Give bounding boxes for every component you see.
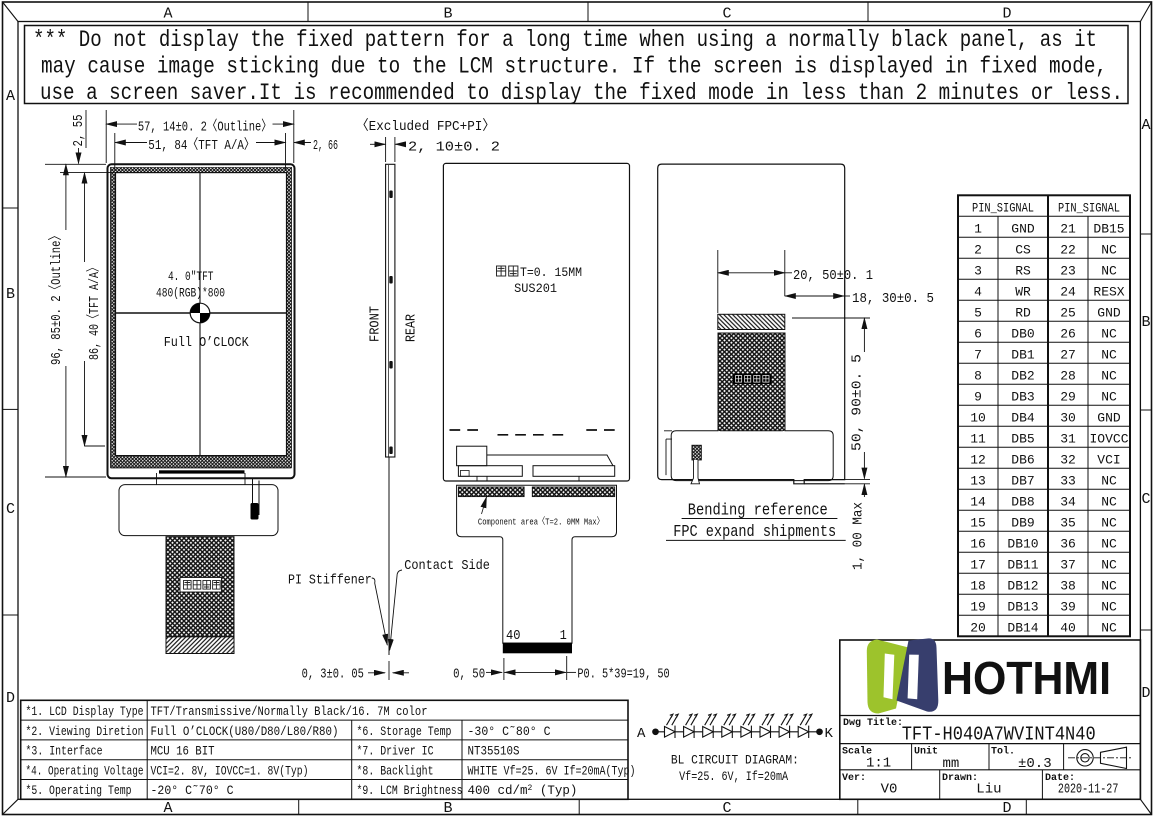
svg-text:NC: NC bbox=[1101, 474, 1117, 489]
svg-text:TFT-H040A7WVINT4N40: TFT-H040A7WVINT4N40 bbox=[902, 724, 1096, 746]
svg-text:VCI: VCI bbox=[1097, 453, 1120, 468]
svg-text:DB12: DB12 bbox=[1007, 579, 1038, 594]
svg-text:may cause image sticking due t: may cause image sticking due to the LCM … bbox=[41, 54, 1107, 81]
svg-text:use a screen saver.It is recom: use a screen saver.It is recommended to … bbox=[40, 80, 1123, 107]
svg-text:Vf=25. 6V, If=20mA: Vf=25. 6V, If=20mA bbox=[679, 769, 788, 784]
svg-text:36: 36 bbox=[1060, 537, 1076, 552]
svg-text:Ver:: Ver: bbox=[842, 773, 866, 784]
svg-text:40: 40 bbox=[1060, 621, 1076, 636]
svg-text:*4. Operating Voltage: *4. Operating Voltage bbox=[26, 764, 144, 778]
svg-text:FRONT: FRONT bbox=[368, 306, 384, 342]
svg-text:DB7: DB7 bbox=[1011, 474, 1034, 489]
svg-text:8: 8 bbox=[974, 369, 982, 384]
svg-text:NC: NC bbox=[1101, 600, 1117, 615]
svg-text:V0: V0 bbox=[881, 782, 898, 798]
svg-text:Full O’CLOCK: Full O’CLOCK bbox=[164, 335, 249, 351]
svg-text:DB13: DB13 bbox=[1007, 600, 1038, 615]
svg-text:PI Stiffener: PI Stiffener bbox=[288, 573, 372, 589]
svg-text:20: 20 bbox=[970, 621, 986, 636]
svg-text:MCU 16 BIT: MCU 16 BIT bbox=[151, 745, 215, 759]
svg-text:19: 19 bbox=[970, 600, 986, 615]
svg-text:NC: NC bbox=[1101, 621, 1117, 636]
svg-text:38: 38 bbox=[1060, 579, 1076, 594]
svg-text:0, 50: 0, 50 bbox=[453, 667, 485, 683]
svg-text:*2. Viewing Diretion: *2. Viewing Diretion bbox=[26, 725, 144, 739]
svg-text:NC: NC bbox=[1101, 369, 1117, 384]
svg-text:12: 12 bbox=[970, 453, 986, 468]
svg-text:Tol.: Tol. bbox=[991, 746, 1015, 758]
svg-text:*9. LCM Brightness: *9. LCM Brightness bbox=[357, 784, 463, 798]
svg-text:4: 4 bbox=[974, 285, 982, 300]
svg-text:NC: NC bbox=[1101, 495, 1117, 510]
svg-text:-20° C˜70° C: -20° C˜70° C bbox=[151, 784, 234, 798]
svg-text:GND: GND bbox=[1097, 306, 1121, 321]
svg-text:WR: WR bbox=[1015, 285, 1031, 300]
svg-text:NT35510S: NT35510S bbox=[468, 745, 520, 759]
svg-text:*3. Interface: *3. Interface bbox=[26, 745, 103, 759]
svg-text:DB2: DB2 bbox=[1011, 369, 1034, 384]
svg-text:D: D bbox=[1141, 685, 1150, 702]
svg-text:〈Excluded FPC+PI〉: 〈Excluded FPC+PI〉 bbox=[356, 118, 495, 135]
svg-text:400 cd/m2 (Typ): 400 cd/m2 (Typ) bbox=[468, 784, 578, 798]
svg-text:RESX: RESX bbox=[1093, 285, 1124, 300]
svg-text:NC: NC bbox=[1101, 537, 1117, 552]
svg-text:DB6: DB6 bbox=[1011, 453, 1034, 468]
svg-text:16: 16 bbox=[970, 537, 986, 552]
svg-text:C: C bbox=[6, 501, 15, 518]
svg-text:50, 90±0. 5: 50, 90±0. 5 bbox=[850, 354, 866, 451]
svg-text:34: 34 bbox=[1060, 495, 1076, 510]
svg-text:DB14: DB14 bbox=[1007, 621, 1038, 636]
svg-text:9: 9 bbox=[974, 390, 982, 405]
svg-text:DB10: DB10 bbox=[1007, 537, 1038, 552]
svg-text:PIN_SIGNAL: PIN_SIGNAL bbox=[972, 201, 1034, 216]
svg-text:Contact Side: Contact Side bbox=[404, 558, 490, 574]
svg-text:96, 85±0. 2〈Outline〉: 96, 85±0. 2〈Outline〉 bbox=[48, 230, 65, 365]
svg-text:T=0. 15MM: T=0. 15MM bbox=[520, 265, 582, 280]
svg-text:480(RGB)*800: 480(RGB)*800 bbox=[156, 286, 225, 301]
svg-text:RD: RD bbox=[1015, 306, 1031, 321]
svg-text:17: 17 bbox=[970, 558, 986, 573]
svg-text:Drawn:: Drawn: bbox=[942, 773, 978, 784]
svg-text:WHITE Vf=25. 6V If=20mA(Typ): WHITE Vf=25. 6V If=20mA(Typ) bbox=[468, 764, 636, 778]
svg-text:D: D bbox=[6, 690, 15, 707]
svg-text:5: 5 bbox=[974, 306, 982, 321]
svg-text:39: 39 bbox=[1060, 600, 1076, 615]
svg-text:DB4: DB4 bbox=[1011, 411, 1035, 426]
svg-text:D: D bbox=[1002, 6, 1011, 23]
svg-text:A: A bbox=[1141, 117, 1150, 134]
svg-text:K: K bbox=[825, 726, 834, 742]
svg-text:GND: GND bbox=[1097, 411, 1121, 426]
svg-text:GND: GND bbox=[1011, 222, 1035, 237]
svg-text:NC: NC bbox=[1101, 579, 1117, 594]
svg-text:SUS201: SUS201 bbox=[514, 281, 557, 296]
svg-text:Dwg Title:: Dwg Title: bbox=[843, 717, 903, 729]
svg-text:33: 33 bbox=[1060, 474, 1076, 489]
svg-text:1, 00 Max: 1, 00 Max bbox=[851, 502, 867, 570]
svg-text:2, 55: 2, 55 bbox=[71, 115, 87, 147]
svg-text:37: 37 bbox=[1060, 558, 1076, 573]
svg-text:Liu: Liu bbox=[976, 782, 1001, 798]
svg-text:B: B bbox=[6, 286, 15, 303]
svg-text:A: A bbox=[6, 88, 15, 105]
svg-text:C: C bbox=[722, 6, 731, 23]
svg-text:NC: NC bbox=[1101, 327, 1117, 342]
svg-text:REAR: REAR bbox=[404, 314, 420, 342]
svg-text:*6. Storage Temp: *6. Storage Temp bbox=[357, 725, 452, 739]
svg-text:A: A bbox=[637, 726, 646, 742]
svg-text:NC: NC bbox=[1101, 558, 1117, 573]
svg-text:NC: NC bbox=[1101, 348, 1117, 363]
svg-text:NC: NC bbox=[1101, 243, 1117, 258]
svg-text:51, 84〈TFT A/A〉: 51, 84〈TFT A/A〉 bbox=[148, 137, 255, 154]
svg-text:20, 50±0. 1: 20, 50±0. 1 bbox=[793, 268, 873, 284]
svg-text:21: 21 bbox=[1060, 222, 1076, 237]
svg-text:Full O’CLOCK(U80/D80/L80/R80): Full O’CLOCK(U80/D80/L80/R80) bbox=[151, 725, 339, 739]
svg-text:Unit: Unit bbox=[914, 746, 938, 758]
svg-text:27: 27 bbox=[1060, 348, 1076, 363]
svg-text:1: 1 bbox=[560, 628, 567, 644]
svg-text:C: C bbox=[722, 800, 731, 817]
svg-text:*7. Driver IC: *7. Driver IC bbox=[357, 745, 434, 759]
svg-text:10: 10 bbox=[970, 411, 986, 426]
svg-text:Bending reference: Bending reference bbox=[688, 501, 828, 520]
svg-text:A: A bbox=[163, 6, 172, 23]
svg-text:*** Do not display the fixed p: *** Do not display the fixed pattern for… bbox=[33, 27, 1097, 54]
svg-text:*5. Operating Temp: *5. Operating Temp bbox=[26, 784, 132, 798]
svg-text:0, 3±0. 05: 0, 3±0. 05 bbox=[302, 667, 364, 683]
svg-text:-30° C˜80° C: -30° C˜80° C bbox=[468, 725, 551, 739]
svg-text:DB11: DB11 bbox=[1007, 558, 1038, 573]
svg-text:NC: NC bbox=[1101, 516, 1117, 531]
svg-text:2, 66: 2, 66 bbox=[313, 138, 338, 154]
svg-text:6: 6 bbox=[974, 327, 982, 342]
svg-text:DB15: DB15 bbox=[1093, 222, 1124, 237]
svg-text:DB3: DB3 bbox=[1011, 390, 1034, 405]
svg-text:VCI=2. 8V, IOVCC=1. 8V(Typ): VCI=2. 8V, IOVCC=1. 8V(Typ) bbox=[151, 764, 309, 778]
svg-text:30: 30 bbox=[1060, 411, 1076, 426]
svg-text:11: 11 bbox=[970, 432, 986, 447]
svg-text:NC: NC bbox=[1101, 264, 1117, 279]
svg-text:DB8: DB8 bbox=[1011, 495, 1034, 510]
svg-text:4. 0″TFT: 4. 0″TFT bbox=[168, 269, 214, 284]
svg-text:2: 2 bbox=[974, 243, 982, 258]
svg-text:26: 26 bbox=[1060, 327, 1076, 342]
svg-text:DB0: DB0 bbox=[1011, 327, 1034, 342]
svg-text:13: 13 bbox=[970, 474, 986, 489]
svg-text:32: 32 bbox=[1060, 453, 1076, 468]
svg-text:2, 10±0. 2: 2, 10±0. 2 bbox=[408, 140, 500, 156]
svg-text:23: 23 bbox=[1060, 264, 1076, 279]
svg-text:22: 22 bbox=[1060, 243, 1076, 258]
svg-text:A: A bbox=[163, 800, 172, 817]
svg-text:*8. Backlight: *8. Backlight bbox=[357, 764, 434, 778]
svg-text:TFT/Transmissive/Normally Blac: TFT/Transmissive/Normally Black/16. 7M c… bbox=[151, 705, 428, 719]
svg-text:B: B bbox=[443, 800, 452, 817]
svg-text:B: B bbox=[1141, 314, 1150, 331]
svg-text:Component area〈T=2. 0MM Max〉: Component area〈T=2. 0MM Max〉 bbox=[478, 517, 604, 528]
svg-text:mm: mm bbox=[943, 756, 960, 772]
svg-text:28: 28 bbox=[1060, 369, 1076, 384]
svg-text:31: 31 bbox=[1060, 432, 1076, 447]
svg-text:RS: RS bbox=[1015, 264, 1031, 279]
svg-text:PIN_SIGNAL: PIN_SIGNAL bbox=[1058, 201, 1120, 216]
svg-text:86, 40〈TFT A/A〉: 86, 40〈TFT A/A〉 bbox=[86, 262, 103, 360]
svg-text:35: 35 bbox=[1060, 516, 1076, 531]
svg-text:14: 14 bbox=[970, 495, 986, 510]
svg-text:29: 29 bbox=[1060, 390, 1076, 405]
svg-text:3: 3 bbox=[974, 264, 982, 279]
svg-text:18, 30±0. 5: 18, 30±0. 5 bbox=[852, 291, 934, 307]
svg-text:*1. LCD Display Type: *1. LCD Display Type bbox=[26, 705, 144, 719]
svg-text:15: 15 bbox=[970, 516, 986, 531]
svg-text:18: 18 bbox=[970, 579, 986, 594]
svg-text:7: 7 bbox=[974, 348, 982, 363]
svg-text:1:1: 1:1 bbox=[866, 756, 891, 772]
svg-text:40: 40 bbox=[506, 628, 521, 644]
svg-text:57, 14±0. 2〈Outline〉: 57, 14±0. 2〈Outline〉 bbox=[138, 119, 272, 136]
svg-text:BL CIRCUIT DIAGRAM:: BL CIRCUIT DIAGRAM: bbox=[671, 753, 799, 768]
svg-text:CS: CS bbox=[1015, 243, 1031, 258]
svg-text:24: 24 bbox=[1060, 285, 1076, 300]
svg-text:FPC expand shipments: FPC expand shipments bbox=[673, 522, 836, 541]
svg-text:B: B bbox=[443, 6, 452, 23]
svg-text:2020-11-27: 2020-11-27 bbox=[1058, 782, 1119, 798]
svg-text:DB1: DB1 bbox=[1011, 348, 1035, 363]
svg-text:DB9: DB9 bbox=[1011, 516, 1034, 531]
svg-text:HOTHMI: HOTHMI bbox=[942, 652, 1111, 704]
svg-text:IOVCC: IOVCC bbox=[1089, 432, 1128, 447]
svg-text:C: C bbox=[1141, 491, 1150, 508]
svg-text:NC: NC bbox=[1101, 390, 1117, 405]
svg-text:P0. 5*39=19, 50: P0. 5*39=19, 50 bbox=[577, 667, 669, 683]
svg-text:DB5: DB5 bbox=[1011, 432, 1034, 447]
svg-text:1: 1 bbox=[974, 222, 982, 237]
svg-text:±0.3: ±0.3 bbox=[1018, 756, 1052, 772]
svg-text:25: 25 bbox=[1060, 306, 1076, 321]
svg-text:D: D bbox=[1002, 800, 1011, 817]
